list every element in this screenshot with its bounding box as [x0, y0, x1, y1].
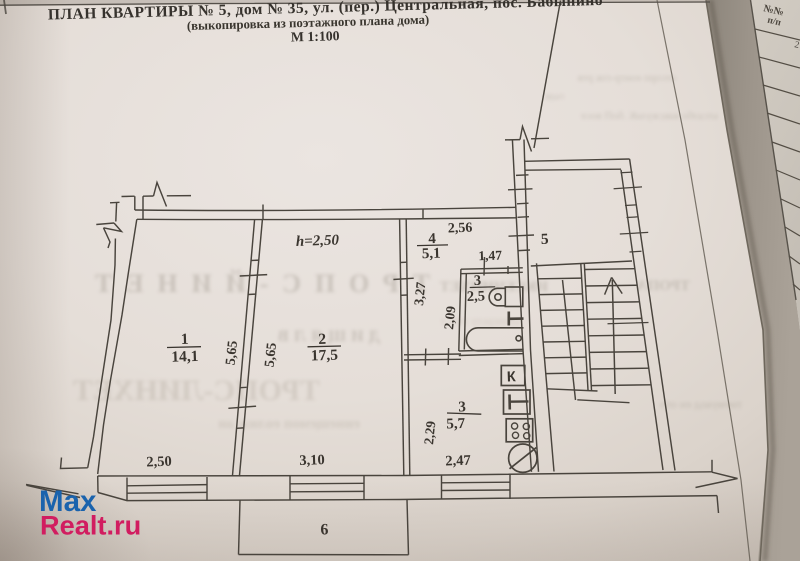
svg-text:отсорп еонтр-гок ртв: отсорп еонтр-гок ртв — [578, 72, 676, 84]
svg-text:5: 5 — [541, 231, 550, 248]
svg-text:3,27: 3,27 — [411, 281, 428, 306]
svg-text:М 1:100: М 1:100 — [291, 28, 340, 44]
svg-text:3,10: 3,10 — [299, 452, 325, 469]
svg-text:1: 1 — [181, 331, 189, 348]
svg-text:ТРОПА: ТРОПА — [637, 278, 690, 294]
svg-text:5,7: 5,7 — [446, 416, 466, 433]
svg-text:2,56: 2,56 — [448, 221, 473, 237]
svg-text:еинещемоп еолиж ан: еинещемоп еолиж ан — [218, 416, 360, 432]
svg-text:5,65: 5,65 — [263, 342, 280, 368]
svg-text:17,5: 17,5 — [311, 347, 339, 365]
svg-text:2,50: 2,50 — [146, 454, 172, 471]
svg-text:h=2,50: h=2,50 — [296, 232, 340, 250]
svg-text:2,09: 2,09 — [441, 305, 458, 330]
svg-text:2,47: 2,47 — [445, 453, 471, 470]
svg-text:2,5: 2,5 — [467, 288, 486, 305]
svg-text:ьтсалбо яаксжулаК .боП восе: ьтсалбо яаксжулаК .боП восе — [581, 110, 718, 122]
svg-text:1,47: 1,47 — [478, 247, 502, 263]
svg-text:14,1: 14,1 — [171, 348, 199, 366]
svg-text:гыдв: гыдв — [545, 91, 564, 101]
svg-text:5,65: 5,65 — [224, 340, 241, 366]
svg-text:Realt.ru: Realt.ru — [40, 510, 141, 541]
svg-text:К: К — [507, 369, 517, 385]
svg-text:5,1: 5,1 — [422, 246, 441, 263]
svg-text:2,29: 2,29 — [421, 420, 438, 445]
svg-text:3: 3 — [474, 273, 482, 289]
svg-text:2: 2 — [318, 331, 327, 348]
svg-text:тнемукод ен отэ: тнемукод ен отэ — [660, 397, 742, 411]
svg-text:6: 6 — [320, 521, 328, 538]
svg-text:ТРОПС-ЛИНХЕТ: ТРОПС-ЛИНХЕТ — [73, 374, 320, 407]
